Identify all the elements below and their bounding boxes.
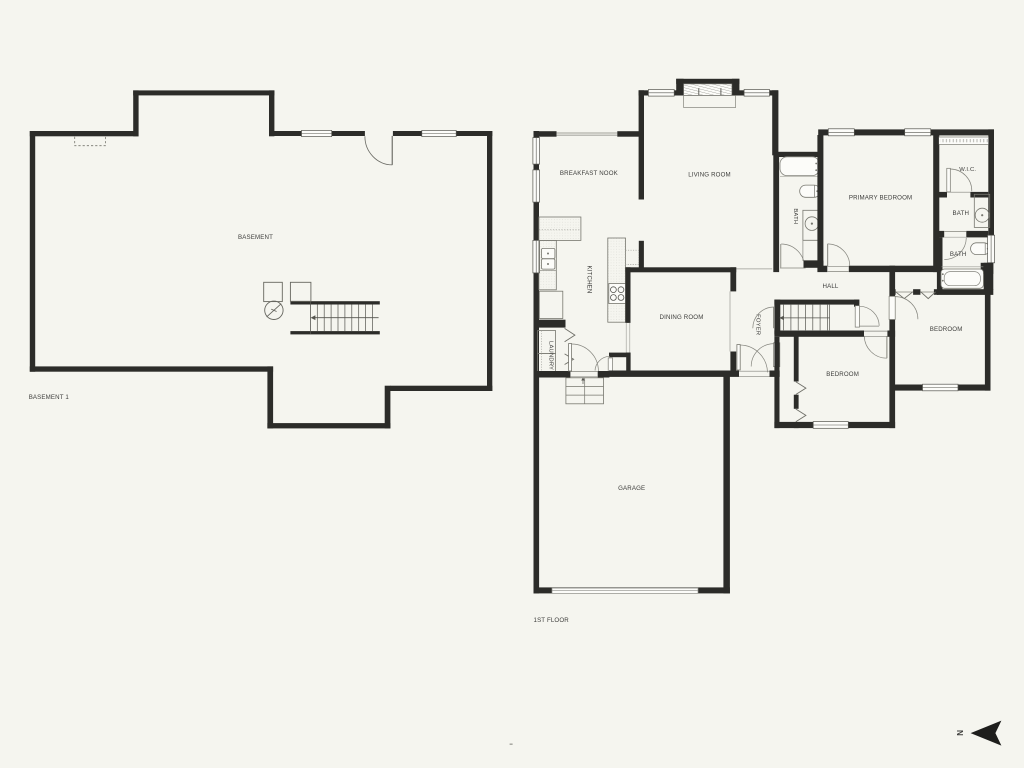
svg-text:BASEMENT: BASEMENT xyxy=(238,234,273,241)
svg-text:PRIMARY BEDROOM: PRIMARY BEDROOM xyxy=(849,195,912,202)
svg-text:DINING ROOM: DINING ROOM xyxy=(660,314,704,321)
svg-text:BEDROOM: BEDROOM xyxy=(826,371,859,378)
svg-text:BATH: BATH xyxy=(792,208,798,224)
svg-text:BEDROOM: BEDROOM xyxy=(930,326,963,333)
svg-text:W.I.C.: W.I.C. xyxy=(959,167,976,173)
svg-text:GARAGE: GARAGE xyxy=(618,485,645,492)
svg-text:BASEMENT 1: BASEMENT 1 xyxy=(29,394,70,401)
svg-text:HALL: HALL xyxy=(823,283,839,290)
svg-text:KITCHEN: KITCHEN xyxy=(586,265,593,293)
svg-text:N: N xyxy=(956,730,965,736)
svg-text:LIVING ROOM: LIVING ROOM xyxy=(688,171,731,178)
svg-text:BREAKFAST NOOK: BREAKFAST NOOK xyxy=(560,170,619,177)
svg-text:LAUNDRY: LAUNDRY xyxy=(547,341,553,370)
svg-text:1ST FLOOR: 1ST FLOOR xyxy=(534,617,570,624)
svg-text:BATH: BATH xyxy=(950,251,967,258)
svg-text:BATH: BATH xyxy=(953,210,970,217)
